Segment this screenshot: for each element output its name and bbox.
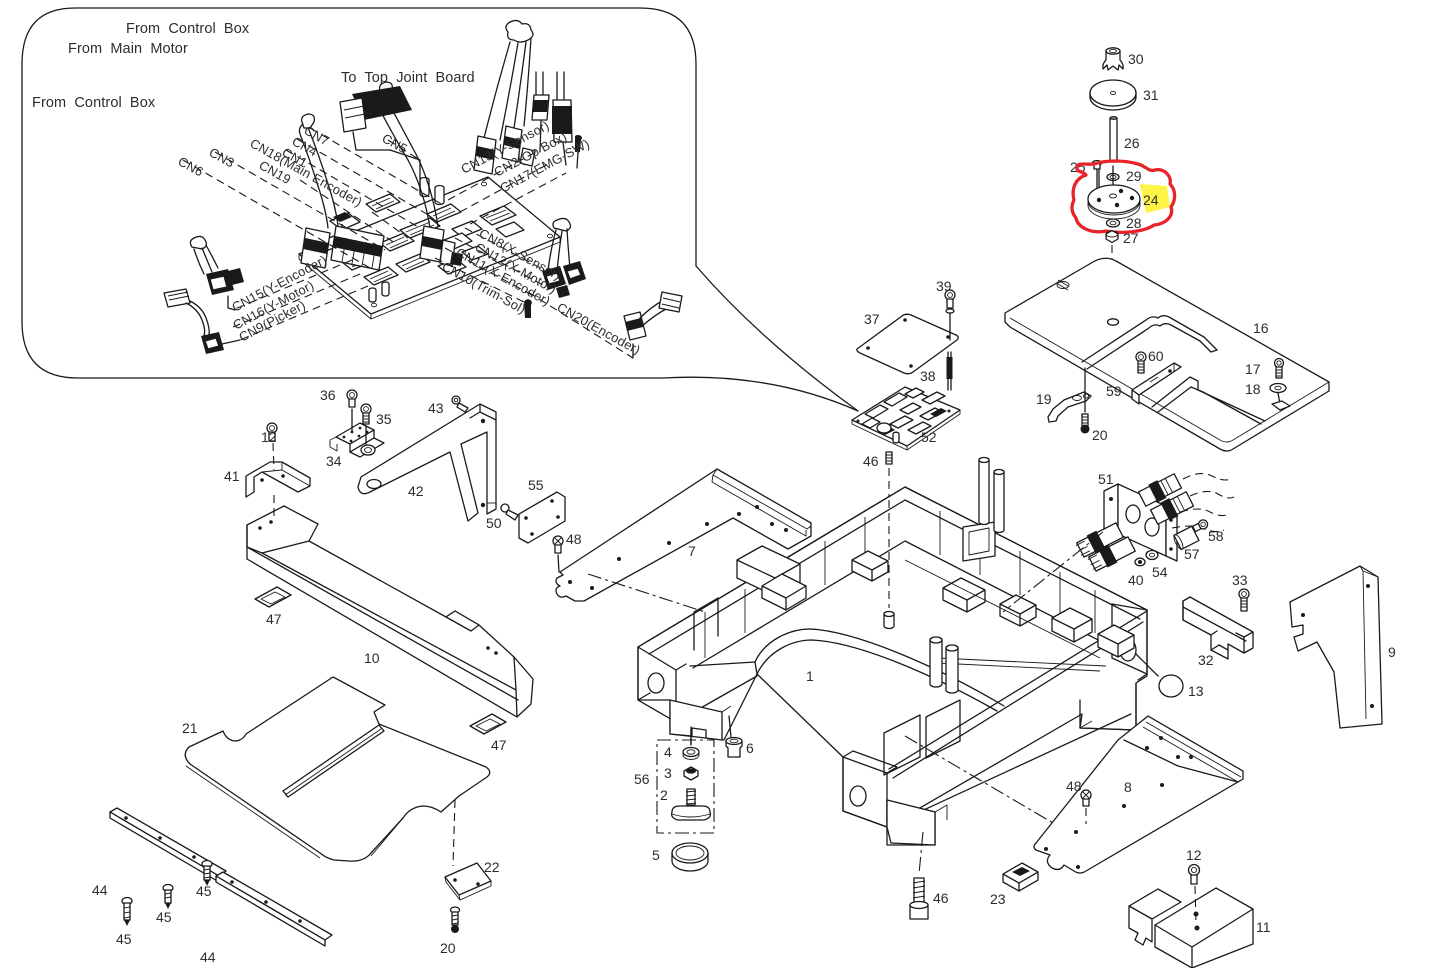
svg-text:47: 47 <box>491 737 507 753</box>
svg-text:9: 9 <box>1388 644 1396 660</box>
svg-text:5: 5 <box>652 847 660 863</box>
svg-text:38: 38 <box>920 368 936 384</box>
svg-text:48: 48 <box>1066 778 1082 794</box>
svg-text:7: 7 <box>688 543 696 559</box>
svg-text:20: 20 <box>1092 427 1108 443</box>
svg-text:From Control Box: From Control Box <box>126 21 250 37</box>
svg-text:60: 60 <box>1148 348 1164 364</box>
svg-text:To Top Joint Board: To Top Joint Board <box>341 70 475 86</box>
svg-text:30: 30 <box>1128 51 1144 67</box>
svg-text:56: 56 <box>634 771 650 787</box>
svg-text:From Control Box: From Control Box <box>32 95 156 111</box>
svg-text:10: 10 <box>364 650 380 666</box>
svg-text:22: 22 <box>484 859 500 875</box>
svg-text:17: 17 <box>1245 361 1261 377</box>
svg-text:28: 28 <box>1126 215 1142 231</box>
svg-text:6: 6 <box>746 740 754 756</box>
svg-text:47: 47 <box>266 611 282 627</box>
svg-text:50: 50 <box>486 515 502 531</box>
svg-text:27: 27 <box>1123 230 1139 246</box>
svg-text:54: 54 <box>1152 564 1168 580</box>
svg-text:48: 48 <box>566 531 582 547</box>
svg-text:8: 8 <box>1124 779 1132 795</box>
svg-text:39: 39 <box>936 278 952 294</box>
svg-text:37: 37 <box>864 311 880 327</box>
svg-text:32: 32 <box>1198 652 1214 668</box>
svg-text:45: 45 <box>116 931 132 947</box>
svg-text:44: 44 <box>200 949 216 965</box>
svg-text:29: 29 <box>1126 168 1142 184</box>
svg-text:23: 23 <box>990 891 1006 907</box>
svg-text:13: 13 <box>1188 683 1204 699</box>
svg-text:2: 2 <box>660 787 668 803</box>
svg-text:40: 40 <box>1128 572 1144 588</box>
svg-text:21: 21 <box>182 720 198 736</box>
svg-text:45: 45 <box>156 909 172 925</box>
svg-text:46: 46 <box>863 453 879 469</box>
svg-text:4: 4 <box>664 744 672 760</box>
svg-text:20: 20 <box>440 940 456 956</box>
svg-text:12: 12 <box>1186 847 1202 863</box>
svg-text:26: 26 <box>1124 135 1140 151</box>
svg-text:58: 58 <box>1208 528 1224 544</box>
svg-text:12: 12 <box>261 429 277 445</box>
svg-text:52: 52 <box>921 429 937 445</box>
svg-text:46: 46 <box>933 890 949 906</box>
svg-text:59: 59 <box>1106 383 1122 399</box>
svg-text:11: 11 <box>1256 919 1271 935</box>
svg-text:35: 35 <box>376 411 392 427</box>
svg-text:42: 42 <box>408 483 424 499</box>
svg-text:16: 16 <box>1253 320 1269 336</box>
svg-text:51: 51 <box>1098 471 1114 487</box>
svg-text:3: 3 <box>664 765 672 781</box>
svg-text:34: 34 <box>326 453 342 469</box>
svg-text:55: 55 <box>528 477 544 493</box>
svg-text:36: 36 <box>320 387 336 403</box>
svg-text:From Main Motor: From Main Motor <box>68 41 188 57</box>
svg-text:24: 24 <box>1143 192 1159 208</box>
svg-text:45: 45 <box>196 883 212 899</box>
svg-text:57: 57 <box>1184 546 1200 562</box>
svg-text:18: 18 <box>1245 381 1261 397</box>
svg-text:41: 41 <box>224 468 240 484</box>
svg-text:19: 19 <box>1036 391 1052 407</box>
svg-text:44: 44 <box>92 882 108 898</box>
svg-text:31: 31 <box>1143 87 1159 103</box>
svg-text:33: 33 <box>1232 572 1248 588</box>
svg-text:43: 43 <box>428 400 444 416</box>
svg-text:1: 1 <box>806 668 814 684</box>
